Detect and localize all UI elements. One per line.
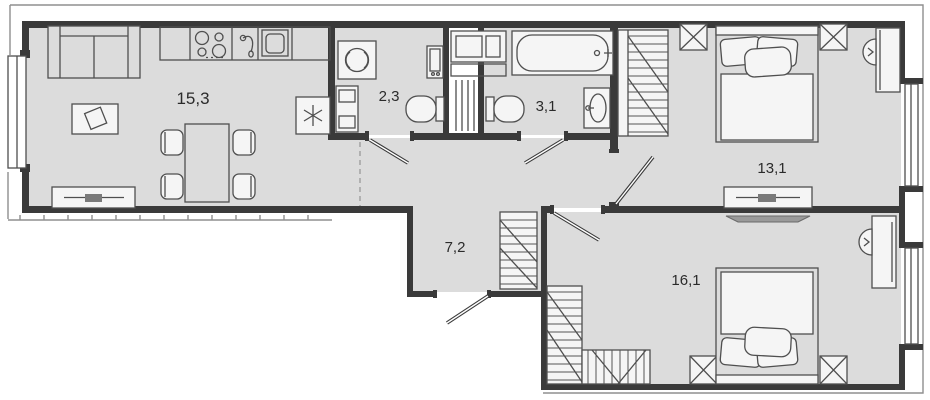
nightstand-icon <box>820 24 847 50</box>
nightstand-icon <box>680 24 707 50</box>
sofa-icon <box>48 26 140 78</box>
window-bedroom-top <box>905 84 918 186</box>
washbasin-small-icon <box>427 46 443 78</box>
tv-stand-living <box>52 187 135 208</box>
double-bed-bottom <box>716 268 818 384</box>
entrance-door <box>447 296 488 323</box>
dining-table-icon <box>185 124 229 202</box>
window-bedroom-bottom <box>905 248 918 344</box>
wardrobe-bedroom-bottom-horizontal <box>582 350 650 384</box>
label-bathroom-small-area: 2,3 <box>379 88 400 105</box>
double-bed-top <box>716 26 818 142</box>
toilet-large-icon <box>486 96 524 122</box>
toilet-small-icon <box>406 96 444 122</box>
window-left <box>8 56 26 168</box>
floor-hall-upper <box>330 138 618 208</box>
label-bathroom-large-area: 3,1 <box>536 98 557 115</box>
fridge-icon <box>296 97 330 134</box>
nightstand-icon <box>690 356 717 384</box>
hall-wardrobe-icon <box>500 212 537 289</box>
label-bedroom-bottom-area: 16,1 <box>671 272 700 289</box>
coffee-table-icon <box>72 104 118 134</box>
balcony-ticks <box>20 215 308 220</box>
wardrobe-bedroom-bottom-vertical <box>547 286 582 384</box>
wall-tv-bedroom-bottom <box>726 216 810 222</box>
tv-stand-bedroom-top <box>724 187 812 208</box>
label-bedroom-top-area: 13,1 <box>757 160 786 177</box>
label-living-kitchen-area: 15,3 <box>176 89 209 108</box>
wardrobe-bedroom-top <box>618 30 668 136</box>
floor-plan: 15,3 2,3 3,1 13,1 7,2 16,1 <box>0 0 930 400</box>
nightstand-icon <box>820 356 847 384</box>
washbasin-large-icon <box>584 88 610 128</box>
label-hallway-area: 7,2 <box>445 239 466 256</box>
washing-machine-icon <box>338 41 376 79</box>
bathtub-icon <box>512 31 613 75</box>
bathroom-cabinet-icon <box>336 86 358 132</box>
